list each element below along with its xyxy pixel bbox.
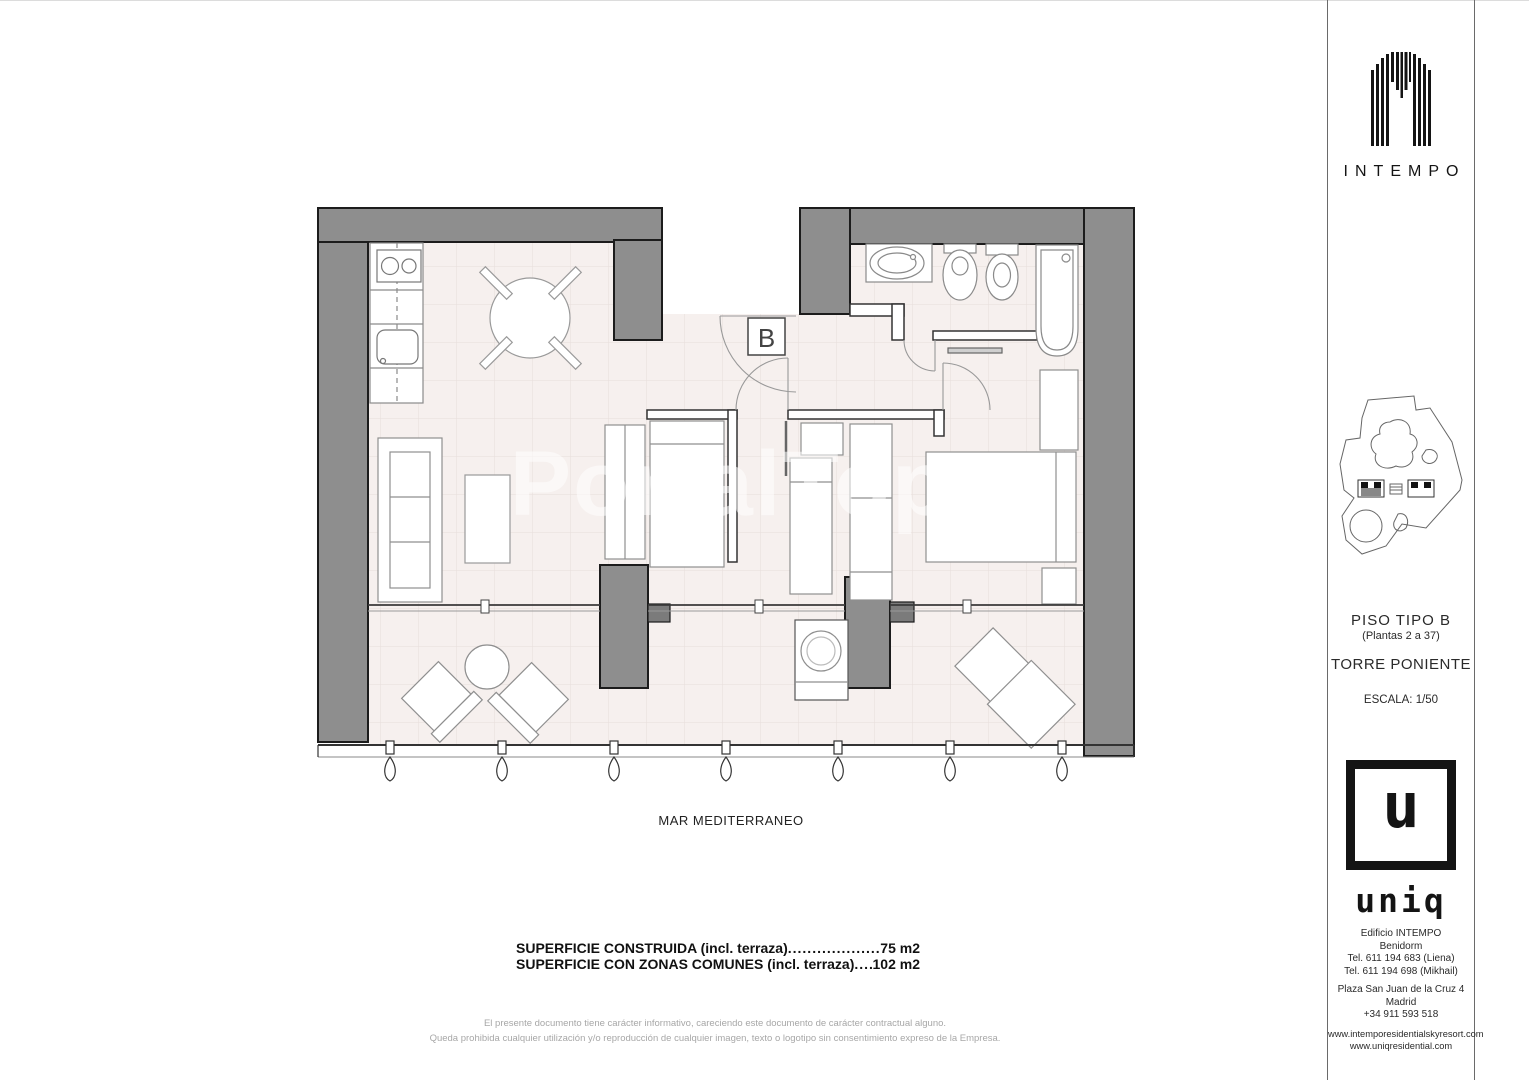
- site-plan-map: [1338, 394, 1464, 558]
- unit-scale: ESCALA: 1/50: [1328, 694, 1474, 706]
- unit-title: PISO TIPO B: [1328, 612, 1474, 629]
- dining-table: [480, 267, 582, 370]
- disclaimer-line: Queda prohibida cualquier utilización y/…: [365, 1031, 1065, 1046]
- toilet-icon: [986, 244, 1018, 255]
- area-label: SUPERFICIE CONSTRUIDA (incl. terraza): [516, 940, 788, 956]
- sofa: [378, 438, 442, 602]
- sea-label: MAR MEDITERRANEO: [606, 813, 856, 828]
- uniq-logo-letter: u: [1355, 769, 1447, 843]
- area-row: SUPERFICIE CON ZONAS COMUNES (incl. terr…: [516, 956, 920, 972]
- contact-tel: Tel. 611 194 698 (Mikhail): [1328, 966, 1474, 979]
- contact-websites: www.intemporesidentialskyresort.com www.…: [1328, 1028, 1474, 1052]
- contact-building: Edificio INTEMPO: [1328, 928, 1474, 941]
- area-value: 75 m2: [880, 940, 920, 956]
- bed: [790, 458, 832, 594]
- floor-plan-drawing: B: [0, 0, 1529, 1080]
- headboard-shelf: [801, 423, 843, 455]
- disclaimer-line: El presente documento tiene carácter inf…: [365, 1016, 1065, 1031]
- contact-tel: Tel. 611 194 683 (Liena): [1328, 953, 1474, 966]
- area-label: SUPERFICIE CON ZONAS COMUNES (incl. terr…: [516, 956, 854, 972]
- intempo-brand: INTEMPO: [1328, 52, 1474, 181]
- unit-tower: TORRE PONIENTE: [1328, 656, 1474, 673]
- contact-group: Edificio INTEMPO Benidorm Tel. 611 194 6…: [1328, 928, 1474, 978]
- terrace-pillar: [600, 565, 648, 688]
- bedroom1-furniture: [605, 421, 724, 567]
- intempo-logo-text: INTEMPO: [1328, 163, 1474, 181]
- unit-badge: B: [748, 318, 785, 355]
- coffee-table: [465, 475, 510, 563]
- unit-label: B: [758, 323, 775, 353]
- area-value: 102 m2: [873, 956, 920, 972]
- contact-web: www.intemporesidentialskyresort.com: [1328, 1028, 1474, 1040]
- contact-tel: +34 911 593 518: [1328, 1009, 1474, 1022]
- washing-machine: [795, 620, 848, 700]
- leader-dots: ........................................…: [788, 940, 881, 956]
- legal-disclaimer: El presente documento tiene carácter inf…: [365, 1016, 1065, 1046]
- double-bed: [926, 452, 1076, 562]
- unit-info: PISO TIPO B (Plantas 2 a 37) TORRE PONIE…: [1328, 612, 1474, 706]
- terrace-table: [465, 645, 509, 689]
- towel-rail: [948, 348, 1002, 353]
- unit-floors: (Plantas 2 a 37): [1328, 630, 1474, 642]
- contact-city: Madrid: [1328, 997, 1474, 1010]
- wardrobe: [850, 424, 892, 600]
- area-summary: SUPERFICIE CONSTRUIDA (incl. terraza) ..…: [516, 940, 920, 972]
- kitchen-counter: [370, 243, 423, 403]
- contact-group: Plaza San Juan de la Cruz 4 Madrid +34 9…: [1328, 984, 1474, 1022]
- uniq-logo: u uniq: [1328, 760, 1474, 920]
- contact-web: www.uniqresidential.com: [1328, 1040, 1474, 1052]
- contact-city: Benidorm: [1328, 941, 1474, 954]
- leader-dots: ........................................…: [854, 956, 872, 972]
- uniq-logo-text: uniq: [1328, 881, 1474, 920]
- intempo-tower-icon: [1371, 52, 1431, 148]
- bed: [650, 421, 724, 567]
- wardrobe: [1040, 370, 1078, 450]
- plan-sheet: B PortalTop MAR MEDITERRANEO SUPERFICIE …: [0, 0, 1529, 1080]
- title-block-sidebar: INTEMPO PISO TIPO B (Plantas 2: [1327, 0, 1475, 1080]
- contact-address: Plaza San Juan de la Cruz 4: [1328, 984, 1474, 997]
- nightstand: [1042, 568, 1076, 604]
- uniq-logo-icon: u: [1346, 760, 1456, 870]
- terrace-railing: [318, 741, 1134, 781]
- agency-contact: Edificio INTEMPO Benidorm Tel. 611 194 6…: [1328, 928, 1474, 1058]
- area-row: SUPERFICIE CONSTRUIDA (incl. terraza) ..…: [516, 940, 920, 956]
